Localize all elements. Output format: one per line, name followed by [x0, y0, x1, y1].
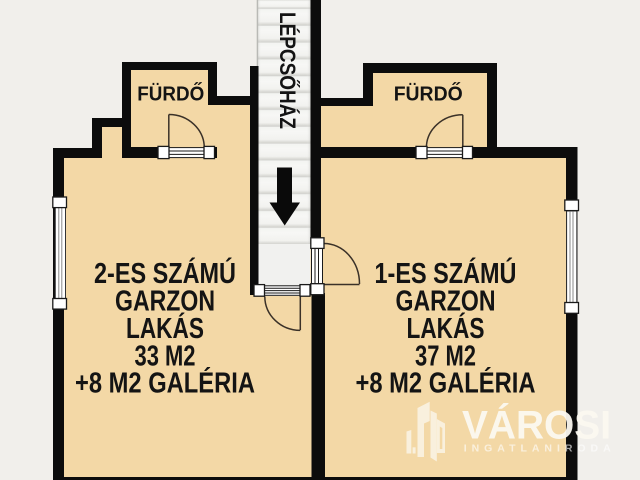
svg-text:LÉPCSŐHÁZ: LÉPCSŐHÁZ: [275, 12, 300, 129]
svg-text:+8 M2 GALÉRIA: +8 M2 GALÉRIA: [356, 366, 536, 400]
svg-text:FÜRDŐ: FÜRDŐ: [137, 83, 204, 106]
svg-text:FÜRDŐ: FÜRDŐ: [394, 83, 463, 106]
svg-text:+8 M2 GALÉRIA: +8 M2 GALÉRIA: [75, 366, 255, 400]
svg-text:VÁROSI: VÁROSI: [462, 404, 611, 448]
